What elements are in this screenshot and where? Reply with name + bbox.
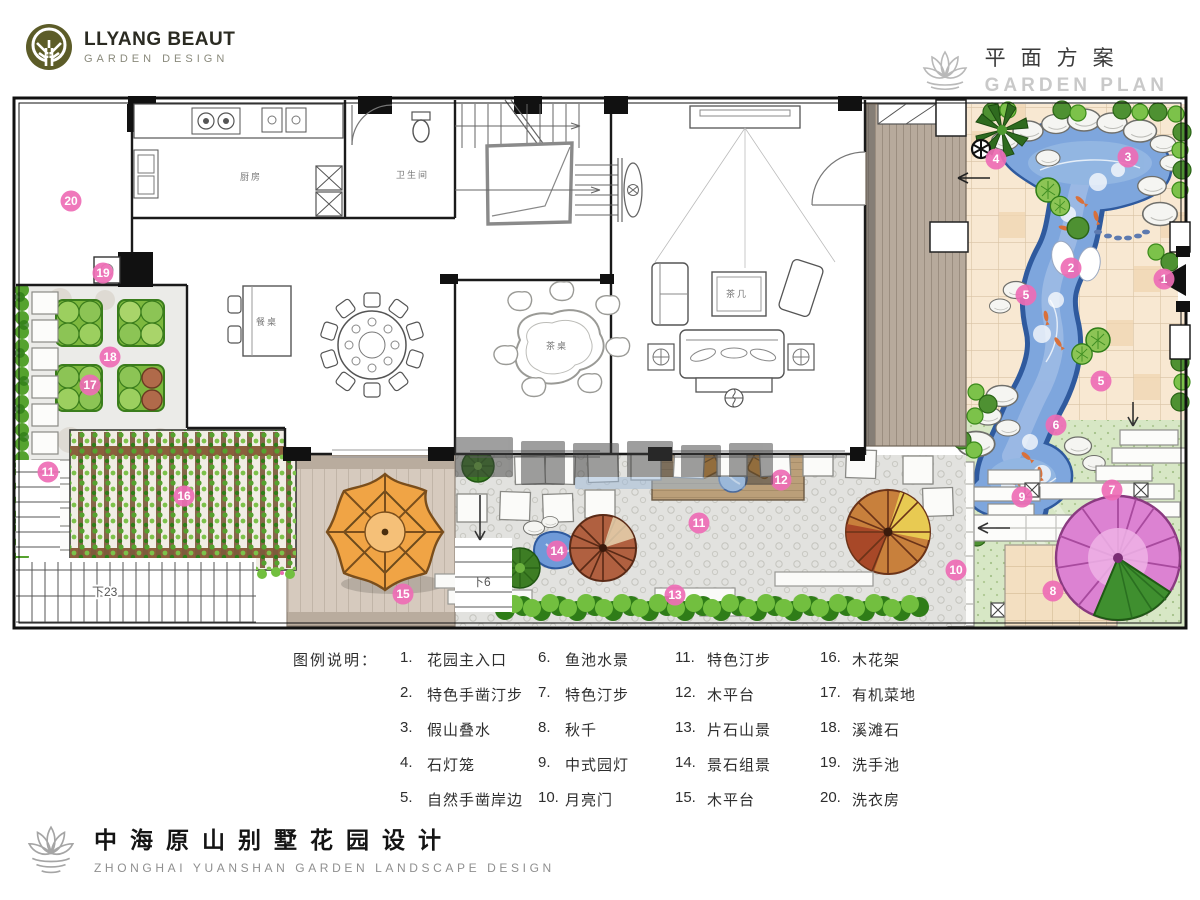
svg-text:2: 2 xyxy=(1068,261,1075,275)
stair-label-mid: 下6 xyxy=(472,575,491,589)
legend-item: 12.木平台 xyxy=(675,684,771,719)
legend-item: 16.木花架 xyxy=(820,649,916,684)
svg-text:4: 4 xyxy=(993,152,1000,166)
svg-text:8: 8 xyxy=(1050,584,1057,598)
svg-text:5: 5 xyxy=(1023,288,1030,302)
svg-text:3: 3 xyxy=(1125,150,1132,164)
legend-item: 8.秋千 xyxy=(538,719,629,754)
legend: 图例说明： 1.花园主入口 2.特色手凿汀步 3.假山叠水 4.石灯笼 5.自然… xyxy=(0,641,1200,811)
bathroom-label: 卫生间 xyxy=(396,169,429,180)
legend-item: 20.洗衣房 xyxy=(820,789,916,824)
project-title-en: ZHONGHAI YUANSHAN GARDEN LANDSCAPE DESIG… xyxy=(94,861,555,875)
legend-item: 17.有机菜地 xyxy=(820,684,916,719)
kitchen-label: 厨房 xyxy=(240,171,262,182)
svg-text:20: 20 xyxy=(64,194,78,208)
svg-text:5: 5 xyxy=(1098,374,1105,388)
svg-text:11: 11 xyxy=(693,516,706,530)
legend-item: 18.溪滩石 xyxy=(820,719,916,754)
svg-text:11: 11 xyxy=(42,465,55,479)
lotus-icon-footer xyxy=(24,818,78,878)
svg-text:18: 18 xyxy=(103,350,117,364)
svg-text:12: 12 xyxy=(774,473,788,487)
legend-item: 3.假山叠水 xyxy=(400,719,523,754)
legend-item: 14.景石组景 xyxy=(675,754,771,789)
stair-label-left: 下23 xyxy=(92,585,118,599)
legend-item: 19.洗手池 xyxy=(820,754,916,789)
svg-text:1: 1 xyxy=(1161,272,1168,286)
yellow-red-tree xyxy=(846,490,930,574)
page: LLYANG BEAUT GARDEN DESIGN 平面方案 GARDEN P… xyxy=(0,0,1200,900)
legend-item: 13.片石山景 xyxy=(675,719,771,754)
legend-item: 1.花园主入口 xyxy=(400,649,523,684)
red-tree xyxy=(570,515,636,581)
svg-text:14: 14 xyxy=(550,544,564,558)
legend-title: 图例说明： xyxy=(293,649,378,670)
svg-text:13: 13 xyxy=(668,588,682,602)
svg-text:10: 10 xyxy=(949,563,963,577)
svg-text:7: 7 xyxy=(1109,483,1116,497)
legend-item: 2.特色手凿汀步 xyxy=(400,684,523,719)
svg-text:19: 19 xyxy=(96,266,110,280)
legend-item: 4.石灯笼 xyxy=(400,754,523,789)
legend-item: 7.特色汀步 xyxy=(538,684,629,719)
svg-text:6: 6 xyxy=(1053,418,1060,432)
svg-text:16: 16 xyxy=(177,489,191,503)
tea-table-label: 茶桌 xyxy=(546,340,568,351)
garden-plan-drawing: 下6 xyxy=(0,0,1200,660)
svg-text:9: 9 xyxy=(1019,490,1026,504)
pink-tree xyxy=(1056,496,1180,620)
coffee-table-label: 茶几 xyxy=(726,288,748,299)
legend-item: 6.鱼池水景 xyxy=(538,649,629,684)
project-title-block: 中海原山别墅花园设计 ZHONGHAI YUANSHAN GARDEN LAND… xyxy=(24,818,555,878)
legend-item: 15.木平台 xyxy=(675,789,771,824)
legend-item: 11.特色汀步 xyxy=(675,649,771,684)
legend-item: 9.中式园灯 xyxy=(538,754,629,789)
project-title-cn: 中海原山别墅花园设计 xyxy=(94,821,555,855)
svg-text:17: 17 xyxy=(83,378,97,392)
svg-text:15: 15 xyxy=(396,587,410,601)
plan-svg: 下6 xyxy=(0,0,1200,660)
island-label: 餐桌 xyxy=(256,316,278,327)
